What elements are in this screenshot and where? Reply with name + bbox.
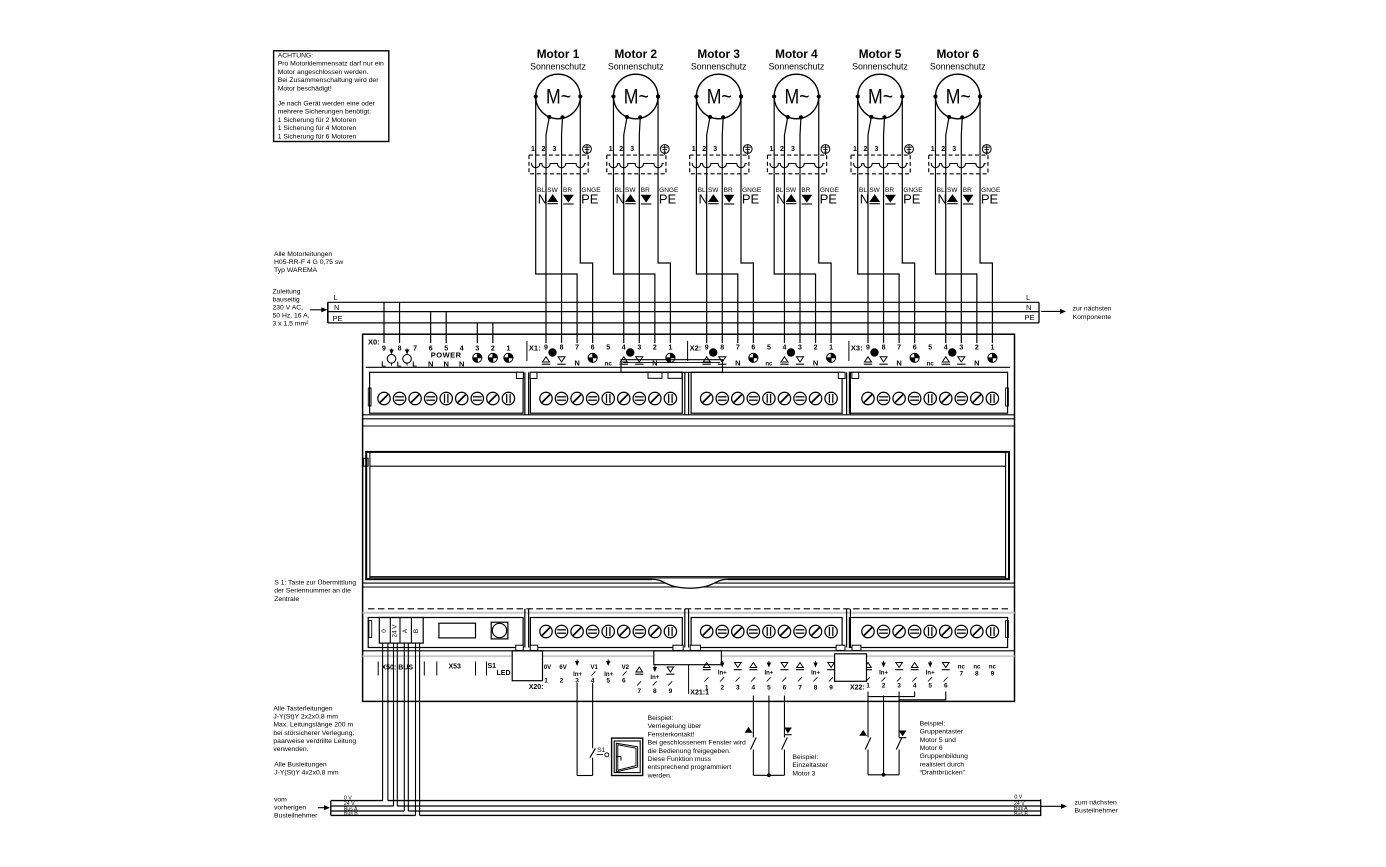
svg-text:6: 6 xyxy=(591,345,595,352)
svg-text:vorherigen: vorherigen xyxy=(274,805,306,812)
svg-text:POWER: POWER xyxy=(431,351,462,360)
svg-text:X3:: X3: xyxy=(851,344,863,353)
svg-text:Gruppentaster: Gruppentaster xyxy=(920,729,964,736)
svg-text:N: N xyxy=(813,359,818,368)
svg-text:8: 8 xyxy=(882,345,886,352)
svg-text:Max. Leitungslänge 200 m: Max. Leitungslänge 200 m xyxy=(273,722,353,729)
svg-text:3: 3 xyxy=(959,345,963,352)
svg-text:7: 7 xyxy=(798,685,802,692)
svg-text:3: 3 xyxy=(791,146,795,153)
svg-text:0 V: 0 V xyxy=(1014,794,1022,800)
svg-text:1: 1 xyxy=(668,345,672,352)
svg-text:4: 4 xyxy=(913,683,917,690)
svg-text:3: 3 xyxy=(736,685,740,692)
svg-text:Bus B: Bus B xyxy=(344,811,358,817)
svg-text:2: 2 xyxy=(941,146,945,153)
svg-text:8: 8 xyxy=(560,345,564,352)
svg-text:7: 7 xyxy=(575,345,579,352)
svg-text:ACHTUNG:: ACHTUNG: xyxy=(278,53,314,60)
svg-text:1: 1 xyxy=(829,345,833,352)
svg-text:N: N xyxy=(334,303,339,312)
svg-text:Sonnenschutz: Sonnenschutz xyxy=(852,62,908,72)
svg-text:1: 1 xyxy=(853,146,857,153)
svg-text:9: 9 xyxy=(866,345,870,352)
svg-text:Motor 1: Motor 1 xyxy=(537,47,580,61)
svg-text:SW: SW xyxy=(786,187,797,194)
svg-text:mehrere Sicherungen benötigt:: mehrere Sicherungen benötigt: xyxy=(278,109,371,116)
svg-text:Fensterkontakt!: Fensterkontakt! xyxy=(648,731,695,738)
svg-text:N: N xyxy=(538,192,547,207)
svg-text:M~: M~ xyxy=(868,85,893,109)
svg-text:Beispiel:: Beispiel: xyxy=(792,754,818,761)
svg-text:BR: BR xyxy=(724,187,733,194)
svg-text:1: 1 xyxy=(506,346,510,353)
svg-text:zum nächsten: zum nächsten xyxy=(1075,800,1118,807)
svg-text:4: 4 xyxy=(782,345,786,352)
svg-text:LED: LED xyxy=(497,670,511,677)
svg-text:S 1: Taste zur Übermittlung: S 1: Taste zur Übermittlung xyxy=(274,579,356,587)
svg-text:Sonnenschutz: Sonnenschutz xyxy=(530,62,586,72)
svg-text:Motor 6: Motor 6 xyxy=(936,47,979,61)
svg-text:B: B xyxy=(413,629,420,633)
svg-text:3: 3 xyxy=(952,146,956,153)
svg-text:1: 1 xyxy=(769,146,773,153)
svg-text:2: 2 xyxy=(542,146,546,153)
svg-text:9: 9 xyxy=(991,671,995,678)
svg-text:Motor 6: Motor 6 xyxy=(920,745,943,752)
svg-text:Bus B: Bus B xyxy=(1014,811,1028,817)
svg-text:N: N xyxy=(652,359,657,368)
svg-text:N: N xyxy=(735,359,740,368)
svg-text:Je nach Gerät werden eine oder: Je nach Gerät werden eine oder xyxy=(278,101,376,108)
svg-text:24 V: 24 V xyxy=(391,624,398,638)
svg-text:230 V AC,: 230 V AC, xyxy=(273,305,304,312)
svg-text:V2: V2 xyxy=(622,665,630,671)
svg-text:X53: X53 xyxy=(449,664,462,671)
svg-text:9: 9 xyxy=(705,345,709,352)
svg-text:N: N xyxy=(616,192,625,207)
svg-text:Busteilnehmer: Busteilnehmer xyxy=(274,813,318,820)
svg-text:7: 7 xyxy=(637,688,641,695)
svg-text:Motor beschädigt!: Motor beschädigt! xyxy=(278,85,332,92)
svg-text:3: 3 xyxy=(630,146,634,153)
svg-text:Beispiel:: Beispiel: xyxy=(920,720,946,727)
svg-text:M~: M~ xyxy=(946,85,971,109)
svg-text:3: 3 xyxy=(475,346,479,353)
svg-text:1: 1 xyxy=(692,146,696,153)
svg-text:2: 2 xyxy=(720,685,724,692)
svg-text:8: 8 xyxy=(720,345,724,352)
svg-text:6: 6 xyxy=(913,345,917,352)
svg-text:3: 3 xyxy=(553,146,557,153)
svg-text:Zentrale: Zentrale xyxy=(274,596,299,603)
svg-text:Komponente: Komponente xyxy=(1073,314,1112,321)
svg-text:4: 4 xyxy=(944,345,948,352)
svg-text:1 Sicherung für 4 Motoren: 1 Sicherung für 4 Motoren xyxy=(278,125,357,132)
svg-text:bei störsicherer Verlegung,: bei störsicherer Verlegung, xyxy=(273,730,354,737)
svg-text:N: N xyxy=(699,192,708,207)
svg-text:6: 6 xyxy=(944,683,948,690)
svg-text:vom: vom xyxy=(274,797,287,804)
svg-text:1 Sicherung für 2 Motoren: 1 Sicherung für 2 Motoren xyxy=(278,117,357,124)
svg-text:M~: M~ xyxy=(784,85,809,109)
svg-text:paarweise verdrillte Leitung: paarweise verdrillte Leitung xyxy=(273,738,356,745)
svg-text:PE: PE xyxy=(659,192,677,207)
svg-text:nc: nc xyxy=(765,362,773,368)
svg-text:nc: nc xyxy=(927,362,935,368)
svg-text:M~: M~ xyxy=(546,85,571,109)
svg-text:3: 3 xyxy=(897,683,901,690)
svg-text:Motor 5 und: Motor 5 und xyxy=(920,737,956,744)
svg-text:X20:: X20: xyxy=(529,684,544,691)
svg-text:5: 5 xyxy=(606,345,610,352)
svg-text:5: 5 xyxy=(606,677,610,684)
svg-text:6: 6 xyxy=(622,677,626,684)
svg-text:Bei Zusammenschaltung wird der: Bei Zusammenschaltung wird der xyxy=(278,77,380,84)
svg-text:PE: PE xyxy=(1025,313,1035,322)
svg-text:bauseitig: bauseitig xyxy=(273,297,300,304)
svg-text:In+: In+ xyxy=(879,671,888,677)
svg-text:2: 2 xyxy=(975,345,979,352)
svg-text:1: 1 xyxy=(609,146,613,153)
svg-text:8: 8 xyxy=(398,346,402,353)
svg-text:zur nächsten: zur nächsten xyxy=(1073,306,1112,313)
svg-text:2: 2 xyxy=(864,146,868,153)
svg-text:1 Sicherung für 6 Motoren: 1 Sicherung für 6 Motoren xyxy=(278,133,357,140)
svg-text:2: 2 xyxy=(702,146,706,153)
svg-text:der Seriennummer an die: der Seriennummer an die xyxy=(274,588,351,595)
svg-text:5: 5 xyxy=(767,345,771,352)
svg-text:6: 6 xyxy=(751,345,755,352)
svg-text:6: 6 xyxy=(783,685,787,692)
svg-text:PE: PE xyxy=(903,192,921,207)
svg-text:5: 5 xyxy=(767,685,771,692)
svg-text:1: 1 xyxy=(705,685,709,692)
svg-text:J-Y(St)Y 2x2x0,8 mm: J-Y(St)Y 2x2x0,8 mm xyxy=(273,714,338,721)
svg-text:Gruppenbildung: Gruppenbildung xyxy=(920,753,969,760)
svg-text:1: 1 xyxy=(990,345,994,352)
svg-text:SW: SW xyxy=(947,187,958,194)
svg-text:1: 1 xyxy=(544,677,548,684)
svg-text:3: 3 xyxy=(637,345,641,352)
svg-text:V1: V1 xyxy=(590,665,598,671)
svg-text:Pro Motorklemmensatz darf nur: Pro Motorklemmensatz darf nur ein xyxy=(278,61,384,68)
svg-text:N: N xyxy=(1026,303,1031,312)
svg-text:N: N xyxy=(574,359,579,368)
svg-text:In+: In+ xyxy=(764,671,773,677)
svg-text:PE: PE xyxy=(981,192,999,207)
svg-text:Motor 4: Motor 4 xyxy=(775,47,818,61)
svg-text:Sonnenschutz: Sonnenschutz xyxy=(930,62,986,72)
svg-text:In+: In+ xyxy=(811,671,820,677)
svg-text:N: N xyxy=(896,359,901,368)
svg-text:S1: S1 xyxy=(597,747,605,754)
svg-text:“Drahtbrücken”: “Drahtbrücken” xyxy=(920,770,966,777)
svg-text:PE: PE xyxy=(333,314,343,323)
svg-text:werden.: werden. xyxy=(647,772,672,779)
svg-text:2: 2 xyxy=(814,345,818,352)
svg-text:2: 2 xyxy=(560,677,564,684)
svg-text:entsprechend programmiert: entsprechend programmiert xyxy=(648,764,732,771)
svg-text:3: 3 xyxy=(798,345,802,352)
svg-text:50 Hz, 16 A,: 50 Hz, 16 A, xyxy=(273,313,310,320)
svg-text:X1:: X1: xyxy=(529,344,541,353)
svg-text:2: 2 xyxy=(653,345,657,352)
svg-text:Sonnenschutz: Sonnenschutz xyxy=(769,62,825,72)
svg-text:Motor 3: Motor 3 xyxy=(697,47,740,61)
svg-text:N: N xyxy=(776,192,785,207)
svg-text:Alle Motorleitungen: Alle Motorleitungen xyxy=(274,251,332,258)
svg-text:5: 5 xyxy=(928,345,932,352)
svg-text:PE: PE xyxy=(581,192,599,207)
svg-text:3 x 1,5 mm²: 3 x 1,5 mm² xyxy=(273,321,310,328)
svg-text:Verriegelung über: Verriegelung über xyxy=(648,723,702,730)
svg-text:3: 3 xyxy=(875,146,879,153)
svg-text:BR: BR xyxy=(885,187,894,194)
svg-text:In+: In+ xyxy=(650,675,659,681)
svg-text:9: 9 xyxy=(382,346,386,353)
svg-text:Zuleitung: Zuleitung xyxy=(273,289,301,296)
svg-text:1: 1 xyxy=(866,683,870,690)
svg-text:Motor angeschlossen werden.: Motor angeschlossen werden. xyxy=(278,69,369,76)
svg-text:4: 4 xyxy=(752,685,756,692)
svg-text:2: 2 xyxy=(491,346,495,353)
svg-text:9: 9 xyxy=(669,688,673,695)
svg-text:Motor 5: Motor 5 xyxy=(859,47,902,61)
svg-text:BR: BR xyxy=(641,187,650,194)
svg-text:BR: BR xyxy=(801,187,810,194)
svg-text:nc: nc xyxy=(605,362,613,368)
svg-text:Alle Busleitungen: Alle Busleitungen xyxy=(274,762,327,769)
svg-text:0V: 0V xyxy=(544,665,551,671)
svg-text:PE: PE xyxy=(820,192,838,207)
svg-text:X0:: X0: xyxy=(368,338,380,347)
svg-text:X2:: X2: xyxy=(690,344,702,353)
svg-text:H05-RR-F 4 G 0,75 sw: H05-RR-F 4 G 0,75 sw xyxy=(274,259,343,266)
svg-text:6V: 6V xyxy=(559,665,566,671)
svg-text:SW: SW xyxy=(708,187,719,194)
svg-text:8: 8 xyxy=(975,671,979,678)
svg-text:4: 4 xyxy=(622,345,626,352)
svg-text:Sonnenschutz: Sonnenschutz xyxy=(691,62,747,72)
svg-text:Bei geschlossenem Fenster wird: Bei geschlossenem Fenster wird xyxy=(648,740,746,747)
svg-text:BR: BR xyxy=(963,187,972,194)
svg-text:9: 9 xyxy=(829,685,833,692)
svg-text:J-Y(St)Y 4x2x0,8 mm: J-Y(St)Y 4x2x0,8 mm xyxy=(274,770,339,777)
svg-text:0: 0 xyxy=(381,629,388,633)
svg-text:In+: In+ xyxy=(926,671,935,677)
svg-text:PE: PE xyxy=(742,192,760,207)
svg-text:SW: SW xyxy=(547,187,558,194)
svg-text:BR: BR xyxy=(563,187,572,194)
svg-text:Typ WAREMA: Typ WAREMA xyxy=(274,267,318,274)
svg-text:M~: M~ xyxy=(707,85,732,109)
svg-text:Motor 3: Motor 3 xyxy=(792,770,815,777)
svg-text:7: 7 xyxy=(897,345,901,352)
svg-text:M~: M~ xyxy=(624,85,649,109)
svg-text:Beispiel:: Beispiel: xyxy=(648,715,674,722)
svg-text:2: 2 xyxy=(882,683,886,690)
svg-text:1: 1 xyxy=(531,146,535,153)
svg-text:2: 2 xyxy=(619,146,623,153)
svg-text:Busteilnehmer: Busteilnehmer xyxy=(1075,808,1119,815)
svg-text:L: L xyxy=(1026,293,1030,302)
svg-text:9: 9 xyxy=(544,345,548,352)
svg-text:7: 7 xyxy=(959,671,963,678)
svg-text:1: 1 xyxy=(931,146,935,153)
svg-text:realisiert durch: realisiert durch xyxy=(920,761,965,768)
svg-text:In+: In+ xyxy=(718,671,727,677)
svg-text:verwenden.: verwenden. xyxy=(273,746,308,753)
svg-text:S1: S1 xyxy=(488,663,497,670)
svg-text:X22:: X22: xyxy=(850,685,865,692)
svg-text:7: 7 xyxy=(736,345,740,352)
svg-text:N: N xyxy=(860,192,869,207)
svg-text:L: L xyxy=(334,293,338,302)
svg-text:Einzeltaster: Einzeltaster xyxy=(792,762,828,769)
svg-text:Alle Tasterleitungen: Alle Tasterleitungen xyxy=(273,706,332,713)
svg-text:5: 5 xyxy=(928,683,932,690)
svg-text:SW: SW xyxy=(625,187,636,194)
svg-text:Motor 2: Motor 2 xyxy=(614,47,657,61)
svg-text:2: 2 xyxy=(780,146,784,153)
svg-text:8: 8 xyxy=(653,688,657,695)
svg-text:Sonnenschutz: Sonnenschutz xyxy=(608,62,664,72)
svg-text:3: 3 xyxy=(713,146,717,153)
svg-text:N: N xyxy=(974,359,979,368)
svg-text:8: 8 xyxy=(814,685,818,692)
svg-text:SW: SW xyxy=(869,187,880,194)
svg-text:N: N xyxy=(938,192,947,207)
svg-text:die Bedienung freigegeben.: die Bedienung freigegeben. xyxy=(648,748,731,755)
svg-text:7: 7 xyxy=(413,346,417,353)
svg-text:Diese Funktion muss: Diese Funktion muss xyxy=(648,756,712,763)
